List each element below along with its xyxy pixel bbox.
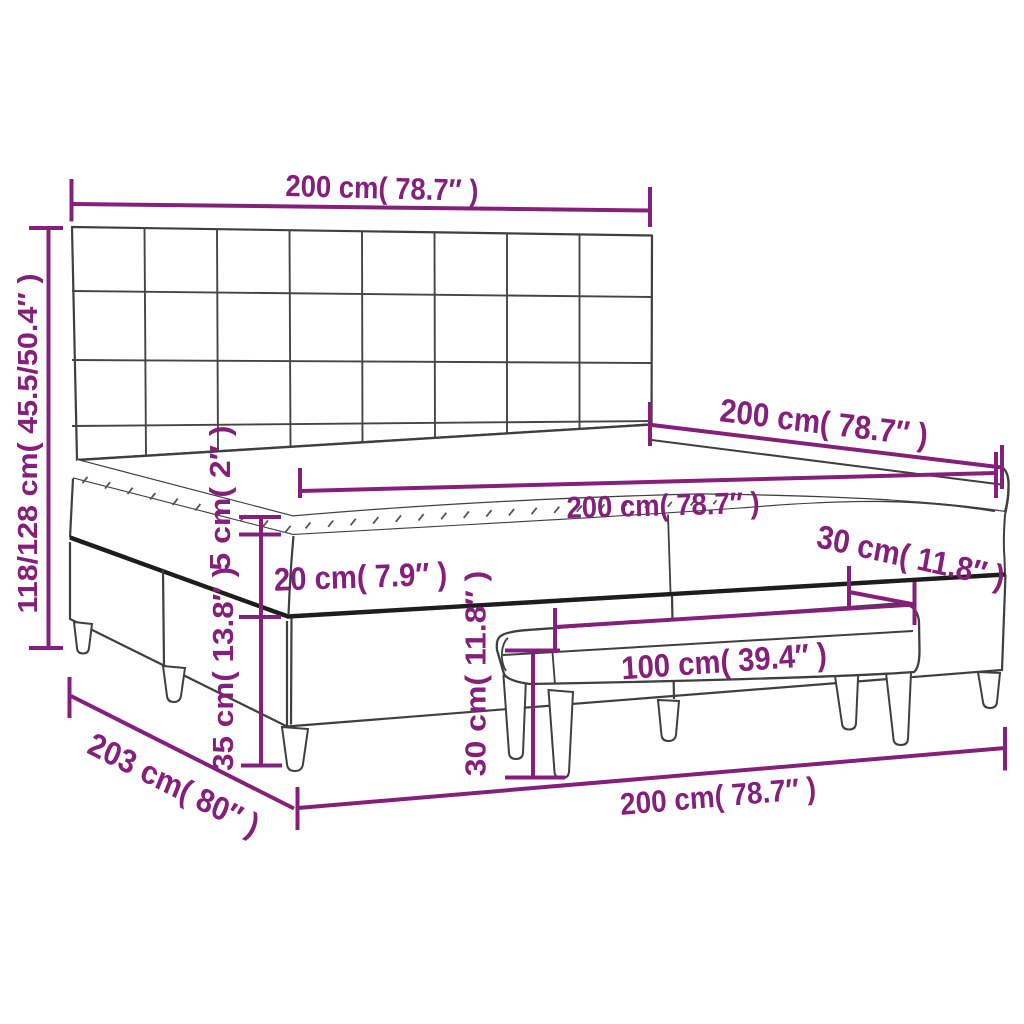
svg-text:35 cm( 13.8″ ): 35 cm( 13.8″ ) xyxy=(209,567,240,771)
svg-text:200 cm( 78.7″ ): 200 cm( 78.7″ ) xyxy=(566,487,760,526)
svg-text:30 cm( 11.8″ ): 30 cm( 11.8″ ) xyxy=(460,571,492,777)
svg-text:200 cm( 78.7″ ): 200 cm( 78.7″ ) xyxy=(285,170,479,208)
svg-text:20 cm( 7.9″ ): 20 cm( 7.9″ ) xyxy=(273,555,447,598)
svg-text:5 cm( 2″ ): 5 cm( 2″ ) xyxy=(204,425,236,570)
svg-text:118/128 cm( 45.5/50.4″ ): 118/128 cm( 45.5/50.4″ ) xyxy=(13,273,43,613)
